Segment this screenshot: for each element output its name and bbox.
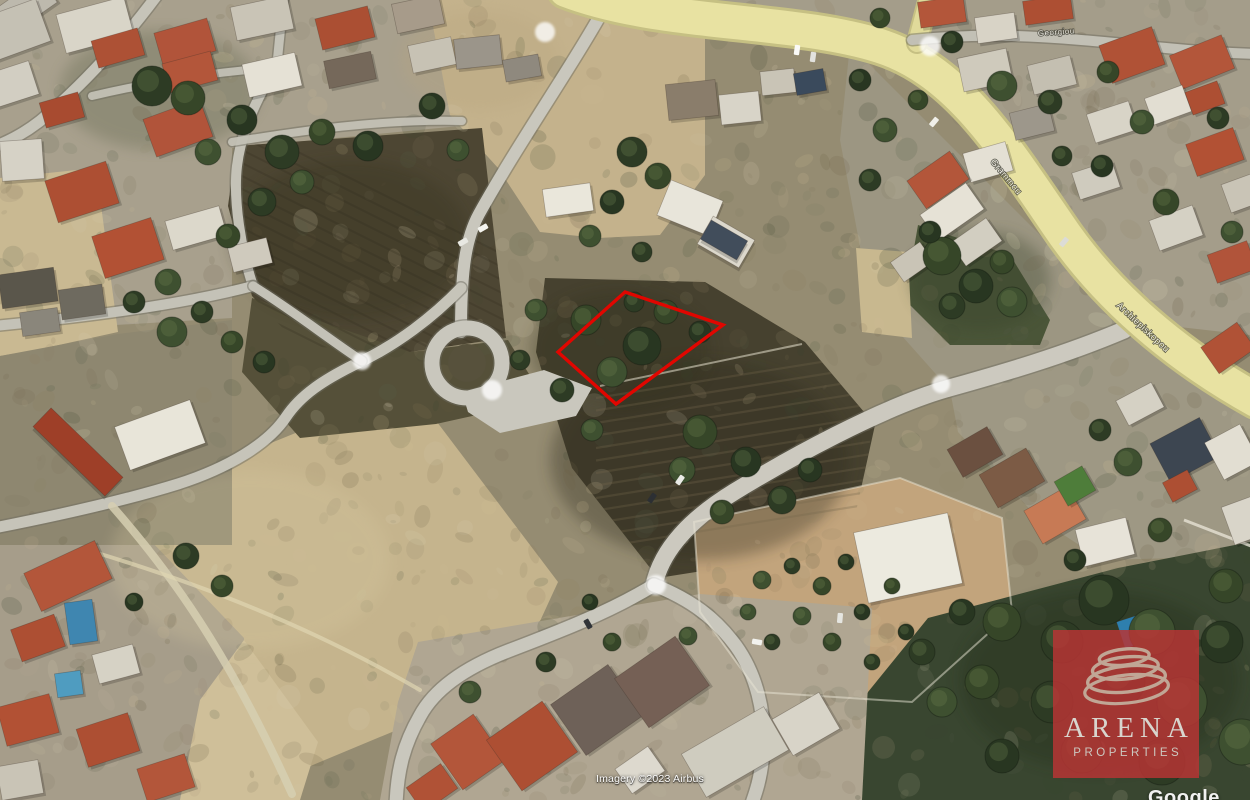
building xyxy=(665,79,718,120)
brand-name: ARENA xyxy=(1053,714,1199,743)
building xyxy=(0,139,44,182)
culdesac-island xyxy=(448,344,486,382)
satellite-listing-image: GeorgiouGrammouArchiepiskopou ARENA PROP… xyxy=(0,0,1250,800)
junction-dot xyxy=(932,375,950,393)
building xyxy=(0,267,58,308)
agency-watermark: ARENA PROPERTIES xyxy=(1053,630,1199,778)
building xyxy=(54,670,83,697)
building xyxy=(58,284,106,320)
building xyxy=(20,307,61,336)
junction-dot xyxy=(482,380,502,400)
building xyxy=(64,599,98,644)
car xyxy=(837,613,843,623)
junction-dot xyxy=(920,36,940,56)
junction-dot xyxy=(646,575,666,595)
junction-dot xyxy=(535,22,555,42)
building xyxy=(793,69,826,96)
building xyxy=(454,35,503,70)
building xyxy=(974,12,1017,43)
building xyxy=(719,91,762,125)
arena-logo-icon xyxy=(1077,637,1175,710)
brand-subtitle: PROPERTIES xyxy=(1053,747,1199,759)
building xyxy=(0,760,44,800)
building xyxy=(760,68,796,95)
google-earth-watermark: Google Earth xyxy=(1148,787,1250,800)
junction-dot xyxy=(353,352,371,370)
imagery-attribution: Imagery ©2023 Airbus xyxy=(560,773,740,785)
